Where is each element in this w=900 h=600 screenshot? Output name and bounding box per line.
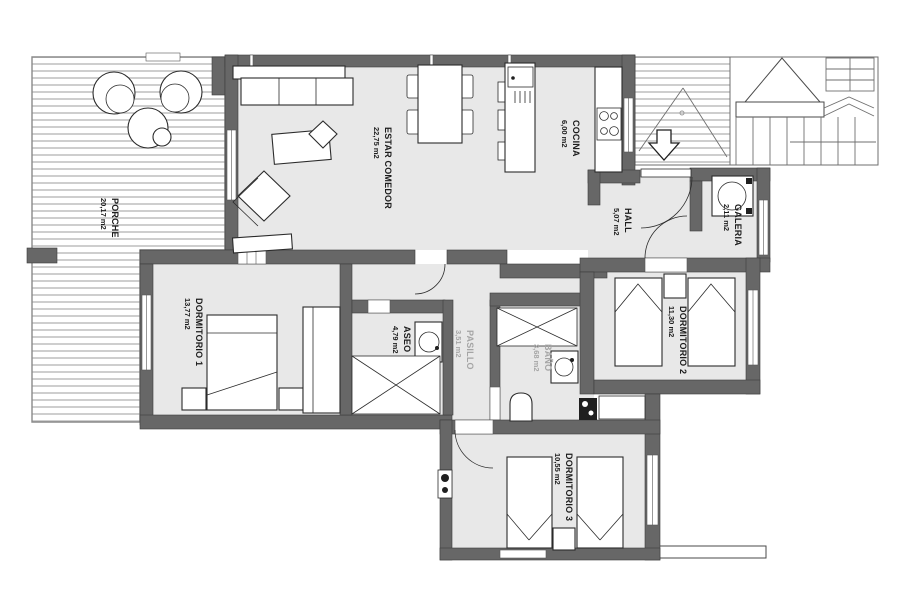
room-name: DORMITORIO 2 (678, 306, 688, 374)
water-heater-icon (438, 470, 452, 498)
room-name: PORCHE (110, 198, 120, 238)
room-area: 2,11 m2 (722, 204, 731, 231)
porch-gate (146, 53, 180, 61)
toilet-icon (510, 393, 532, 421)
room-area: 4,79 m2 (391, 326, 400, 354)
floor-plan-canvas: PORCHE 20,17 m2 ESTAR COMEDOR 22,75 m2 C… (0, 0, 900, 600)
sink-icon (551, 351, 578, 383)
room-area: 5,07 m2 (612, 208, 621, 236)
wardrobe (303, 307, 340, 413)
washing-machine-icon (712, 176, 753, 216)
nightstand (553, 528, 575, 550)
bedroom3-door (455, 420, 493, 434)
room-name: ASEO (402, 326, 412, 352)
floor-plan: PORCHE 20,17 m2 ESTAR COMEDOR 22,75 m2 C… (0, 0, 900, 600)
staircase (635, 57, 878, 165)
aseo-door (368, 300, 390, 313)
double-bed (207, 315, 277, 410)
single-bed (577, 457, 623, 548)
room-name: PASILLO (465, 330, 475, 370)
stove-icon (597, 108, 621, 140)
porch-chair-icon (93, 72, 135, 114)
room-area: 3,68 m2 (532, 344, 541, 372)
shower-icon (352, 356, 440, 414)
room-area: 11,30 m2 (667, 306, 676, 337)
single-bed (688, 278, 735, 366)
kitchen-counter (595, 67, 622, 172)
room-area: 13,77 m2 (183, 298, 192, 330)
closet (599, 396, 645, 419)
bano-door (490, 387, 500, 420)
single-bed (615, 278, 662, 366)
entrance-door-leaf (641, 169, 691, 177)
room-name: ESTAR COMEDOR (383, 127, 393, 209)
room-area: 3,51 m2 (454, 330, 463, 358)
room-name: HALL (623, 208, 633, 233)
room-name: GALERIA (733, 204, 743, 246)
nightstand (664, 274, 686, 298)
shower-icon (497, 308, 577, 346)
room-name: COCINA (571, 120, 581, 157)
room-area: 20,17 m2 (99, 198, 108, 230)
nightstand (182, 388, 206, 410)
room-name: DORMITORIO 3 (564, 453, 574, 521)
bedroom2-door (645, 258, 687, 272)
room-name: BAÑO (543, 344, 553, 371)
nightstand (279, 388, 303, 410)
single-bed (507, 457, 552, 548)
room-area: 22,75 m2 (372, 127, 381, 159)
room-name: DORMITORIO 1 (194, 298, 204, 366)
boiler-icon (579, 398, 597, 420)
porch-chair-icon (160, 71, 202, 113)
room-area: 10,55 m2 (553, 453, 562, 485)
terrace-ledge (658, 546, 766, 558)
room-area: 6,00 m2 (560, 120, 569, 148)
sofa (233, 66, 353, 105)
